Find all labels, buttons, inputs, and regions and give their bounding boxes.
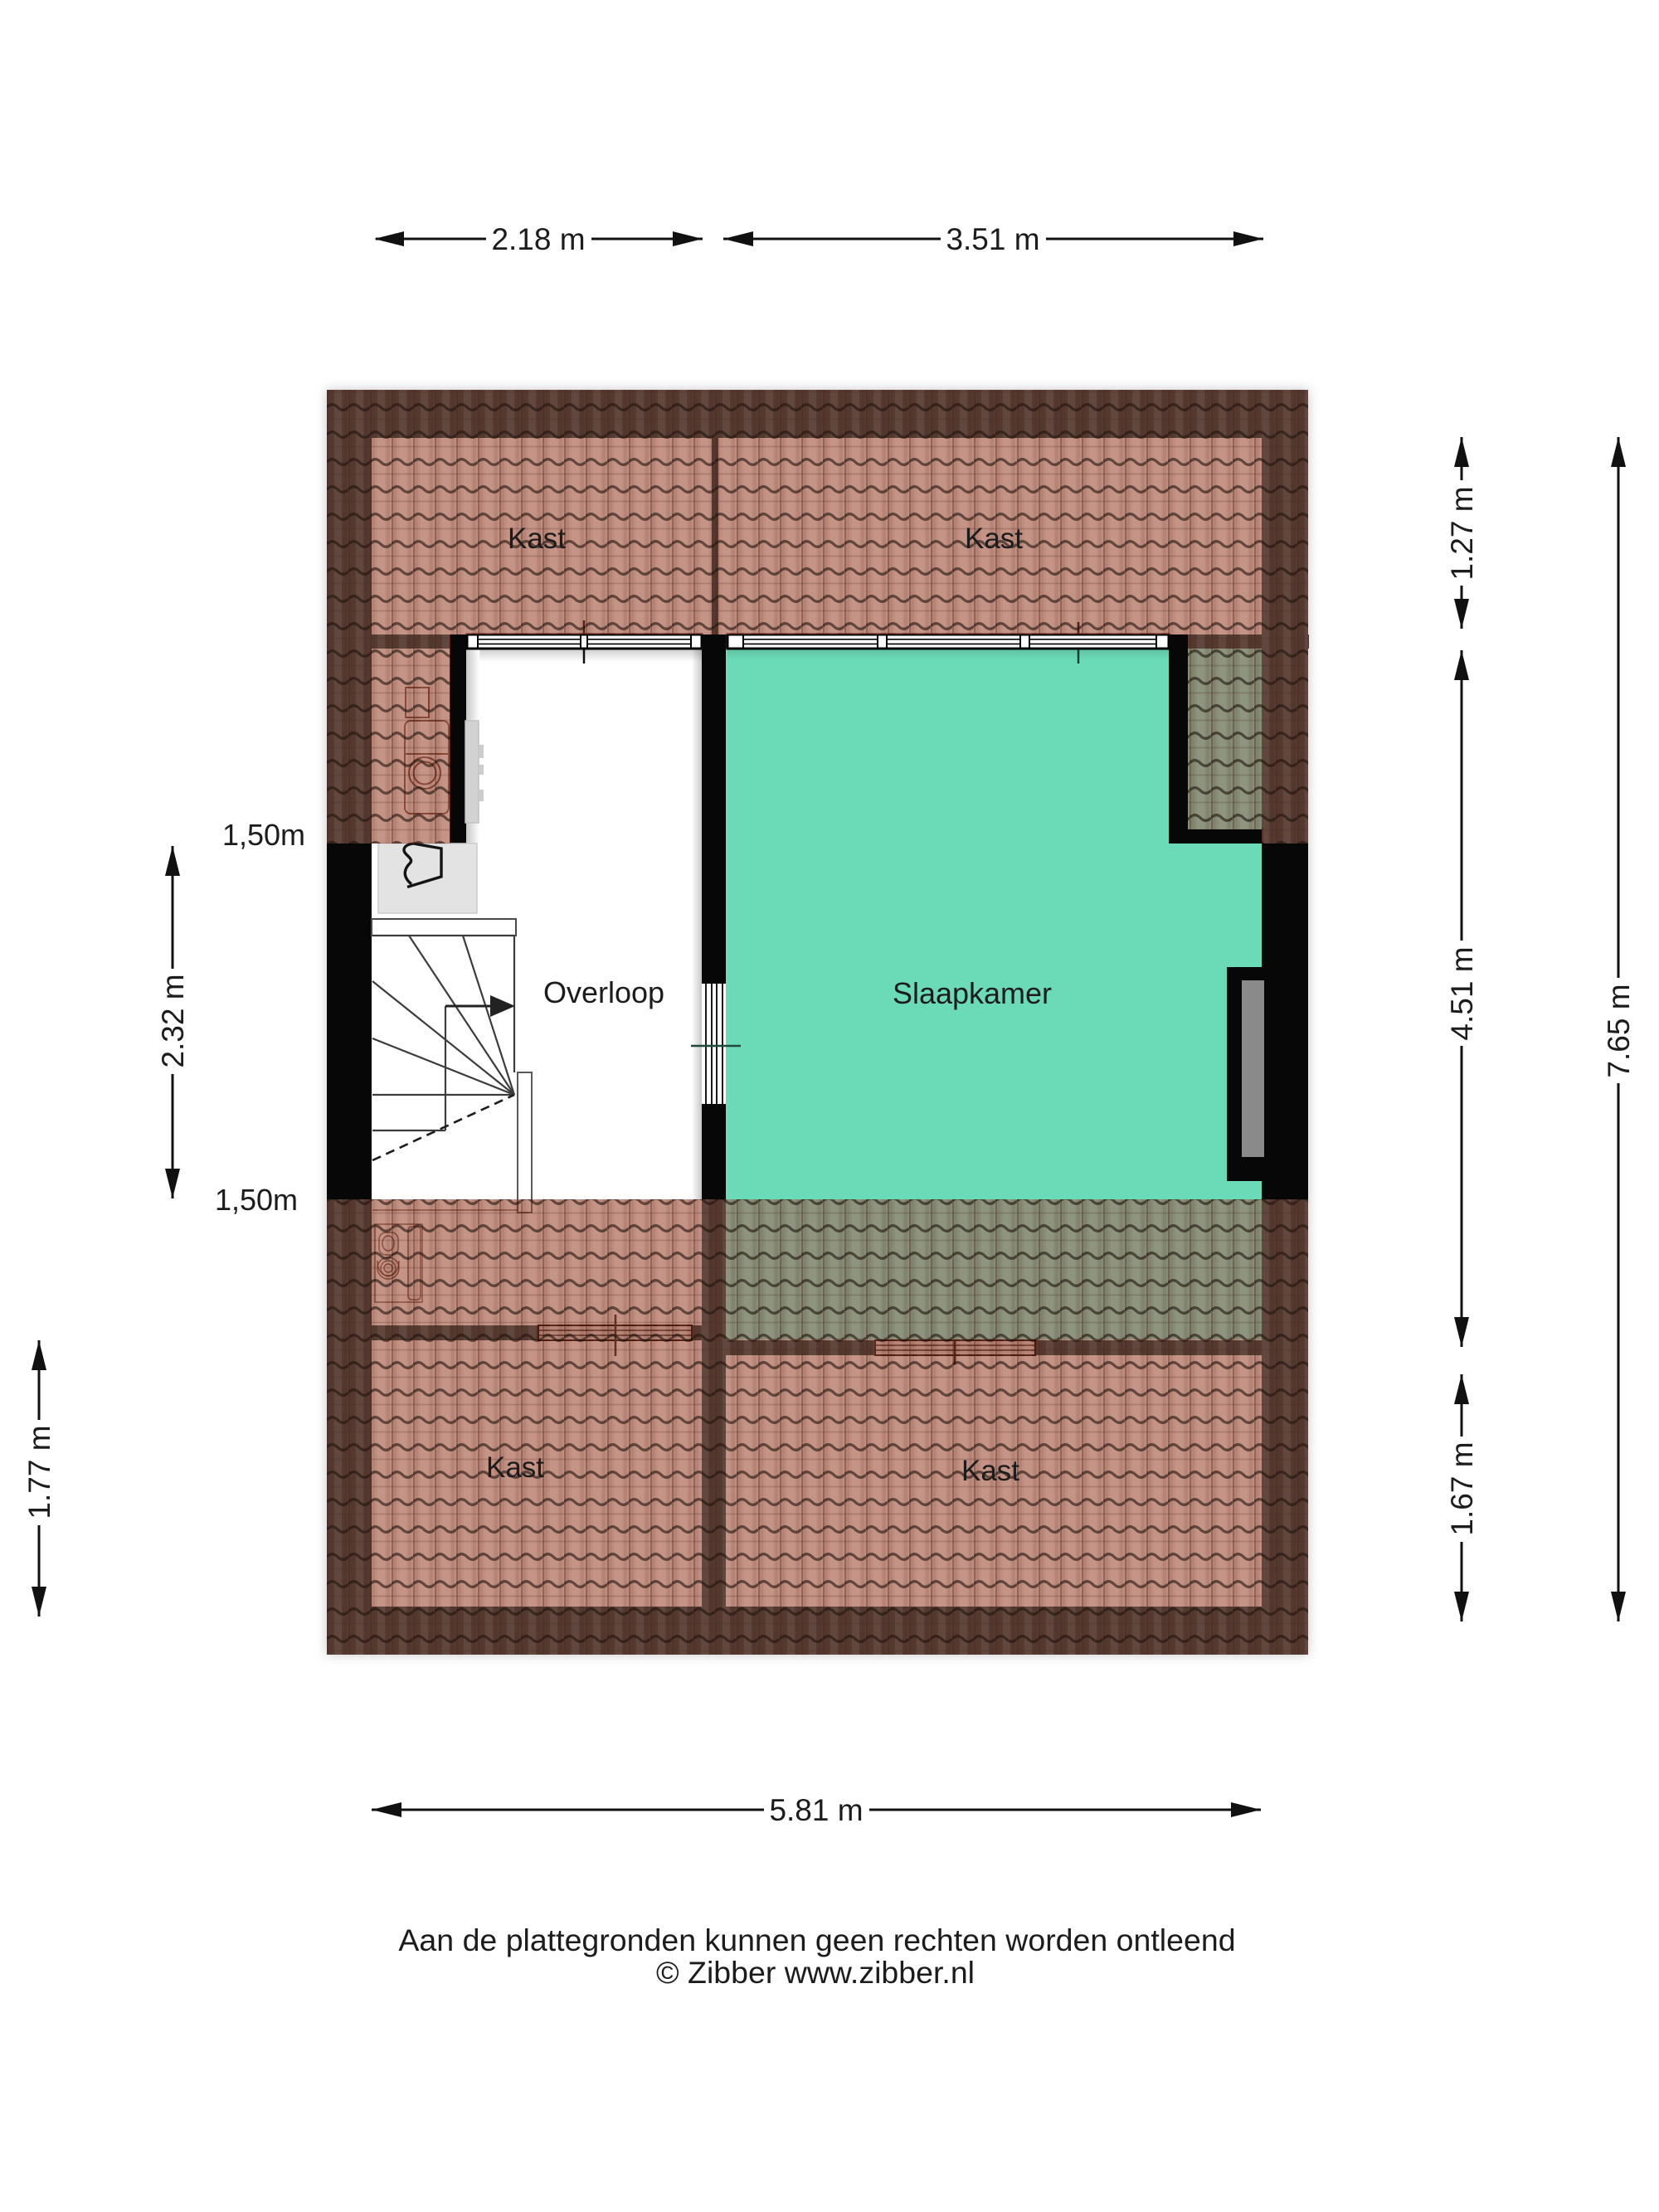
svg-text:Kast: Kast xyxy=(486,1451,544,1484)
svg-text:4.51 m: 4.51 m xyxy=(1445,946,1479,1040)
svg-text:2.32 m: 2.32 m xyxy=(156,974,190,1067)
svg-text:Kast: Kast xyxy=(965,523,1023,555)
svg-text:1,50m: 1,50m xyxy=(215,1183,298,1217)
svg-text:Overloop: Overloop xyxy=(543,975,664,1009)
svg-text:1.27 m: 1.27 m xyxy=(1445,486,1479,580)
svg-text:1.77 m: 1.77 m xyxy=(22,1425,56,1519)
svg-text:5.81 m: 5.81 m xyxy=(769,1793,863,1827)
svg-text:2.18 m: 2.18 m xyxy=(491,222,585,256)
svg-text:© Zibber www.zibber.nl: © Zibber www.zibber.nl xyxy=(656,1955,975,1990)
svg-text:1.67 m: 1.67 m xyxy=(1445,1441,1479,1535)
svg-text:3.51 m: 3.51 m xyxy=(946,222,1039,256)
svg-text:7.65 m: 7.65 m xyxy=(1602,984,1636,1077)
svg-text:1,50m: 1,50m xyxy=(222,818,305,852)
svg-text:Kast: Kast xyxy=(961,1455,1019,1487)
svg-text:Aan de plattegronden kunnen ge: Aan de plattegronden kunnen geen rechten… xyxy=(398,1923,1235,1957)
svg-text:Kast: Kast xyxy=(508,523,566,555)
svg-text:Slaapkamer: Slaapkamer xyxy=(893,976,1052,1010)
